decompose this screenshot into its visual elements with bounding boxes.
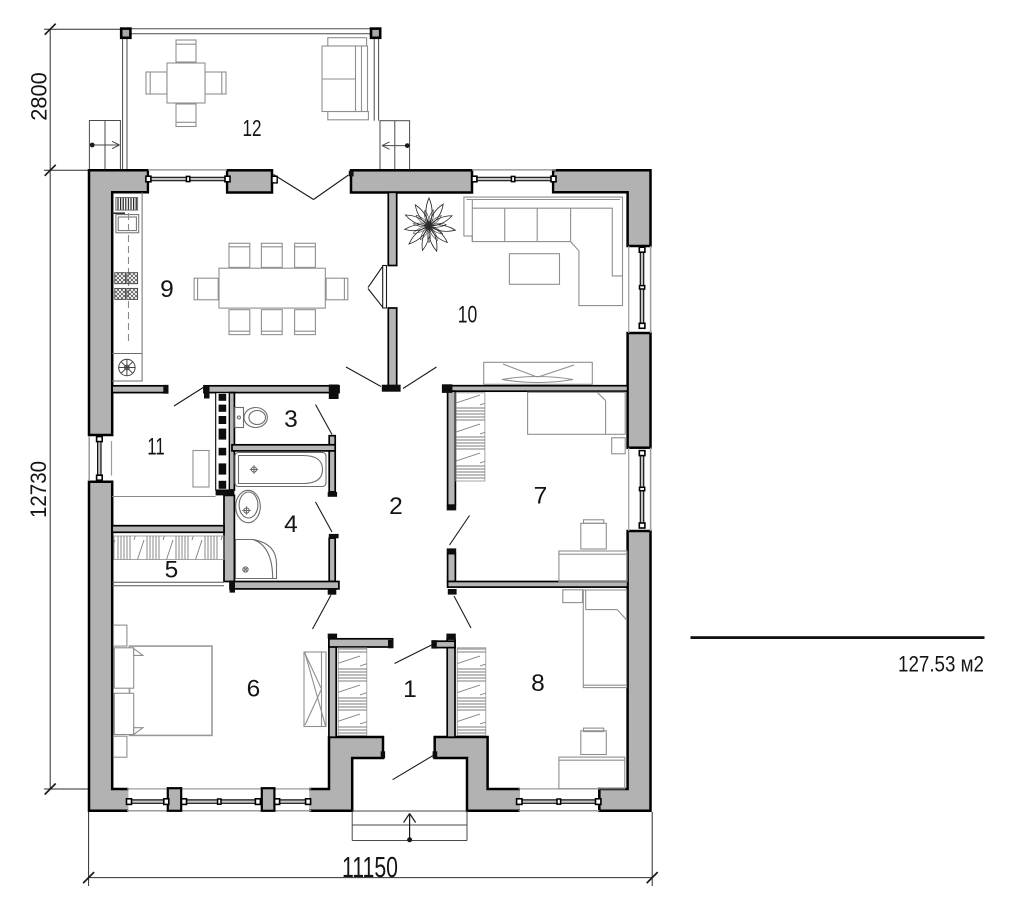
svg-text:12730: 12730 xyxy=(26,461,51,518)
svg-text:11150: 11150 xyxy=(342,852,398,884)
svg-text:1: 1 xyxy=(403,676,417,703)
svg-text:127.53 м2: 127.53 м2 xyxy=(898,652,984,677)
svg-text:4: 4 xyxy=(284,511,298,538)
svg-text:12: 12 xyxy=(243,115,262,141)
svg-text:6: 6 xyxy=(247,676,261,703)
svg-text:8: 8 xyxy=(531,670,545,697)
svg-text:2800: 2800 xyxy=(27,72,52,121)
svg-text:5: 5 xyxy=(165,557,179,584)
svg-text:11: 11 xyxy=(147,434,165,461)
svg-text:7: 7 xyxy=(534,483,548,510)
svg-text:3: 3 xyxy=(284,406,298,433)
svg-text:10: 10 xyxy=(458,302,478,329)
svg-text:9: 9 xyxy=(160,276,174,303)
svg-text:2: 2 xyxy=(389,493,403,520)
